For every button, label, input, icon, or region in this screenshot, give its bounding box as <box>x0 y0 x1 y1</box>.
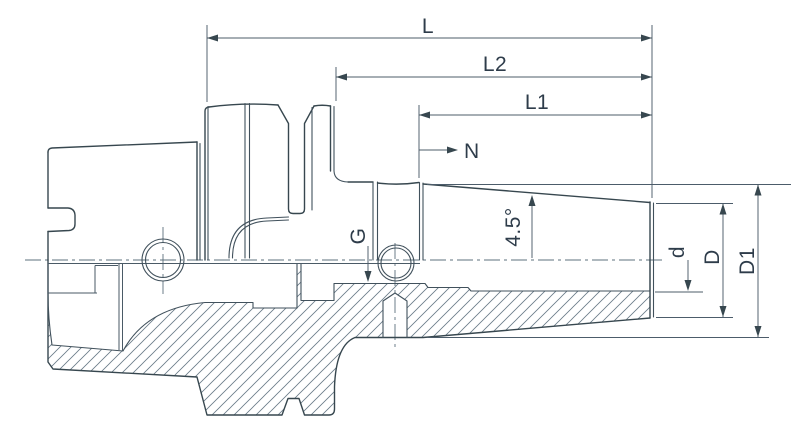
arrowhead <box>447 147 458 154</box>
dim-L2: L2 <box>336 53 652 101</box>
dim-label-d: d <box>666 246 689 258</box>
dimensions: L L2 L1 N <box>207 15 791 338</box>
technical-drawing: L L2 L1 N <box>0 0 812 441</box>
arrowhead <box>720 306 727 317</box>
dim-d: d <box>655 246 703 292</box>
dim-label-L: L <box>422 15 434 38</box>
arrowhead <box>336 74 347 81</box>
body-top-edge-2 <box>378 183 420 185</box>
shank-drive-notch <box>48 208 75 232</box>
dim-N: N <box>419 140 480 163</box>
dim-label-D1: D1 <box>736 247 759 275</box>
toolholder-section-svg: L L2 L1 N <box>0 0 812 441</box>
arrowhead <box>720 204 727 215</box>
gripper-groove <box>278 105 314 214</box>
dim-label-L2: L2 <box>483 53 507 76</box>
dim-label-angle: 4.5° <box>502 207 525 247</box>
nose-taper-edge <box>423 184 650 203</box>
arrowhead <box>207 35 218 42</box>
collar-right-face-inner <box>334 107 348 183</box>
flange-top-edge <box>209 104 278 107</box>
arrowhead <box>419 112 430 119</box>
arrowhead <box>365 271 372 282</box>
dim-label-G: G <box>347 228 370 245</box>
collar-top-edge <box>314 105 331 106</box>
dim-G: G <box>347 228 372 282</box>
dim-L1: L1 <box>419 91 652 178</box>
arrowhead <box>755 326 762 337</box>
arrowhead <box>641 35 652 42</box>
arrowhead <box>529 195 536 206</box>
dim-L: L <box>207 15 652 102</box>
arrowhead <box>755 185 762 196</box>
dim-D: D <box>656 204 733 318</box>
arrowhead <box>641 112 652 119</box>
dim-label-L1: L1 <box>525 91 549 114</box>
dim-taper-angle: 4.5° <box>502 195 536 258</box>
flange-bore-fillet-outer <box>229 217 289 258</box>
arrowhead <box>641 74 652 81</box>
flange-bore-fillet-inner <box>233 220 289 258</box>
arrowhead <box>685 280 692 291</box>
dim-label-D: D <box>701 249 724 265</box>
shank-top-edge <box>48 142 197 152</box>
dim-label-N: N <box>464 140 480 163</box>
